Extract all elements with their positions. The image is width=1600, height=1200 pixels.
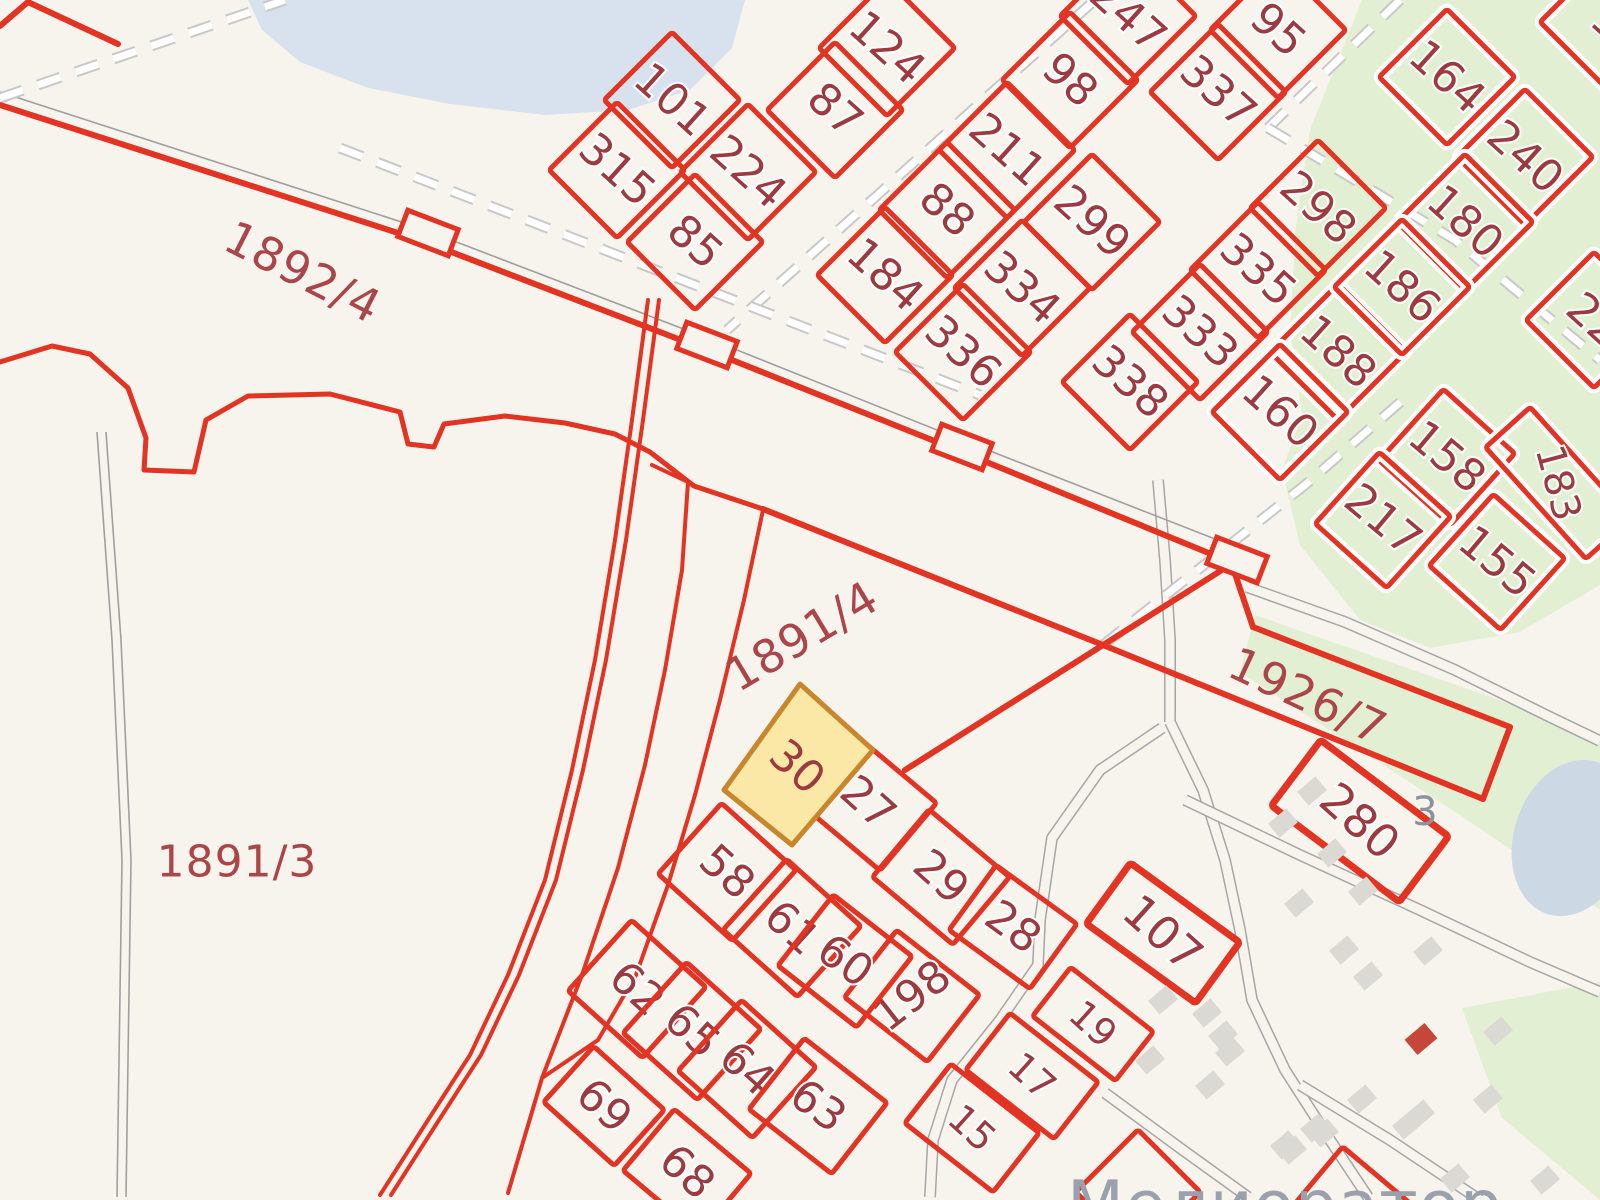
cadastral-map-canvas[interactable]: 1013152248512487247982118818429933433633… (0, 0, 1600, 1200)
house-number-3: 3 (1412, 789, 1437, 835)
cadastral-map-stage: 1013152248512487247982118818429933433633… (0, 0, 1600, 1200)
